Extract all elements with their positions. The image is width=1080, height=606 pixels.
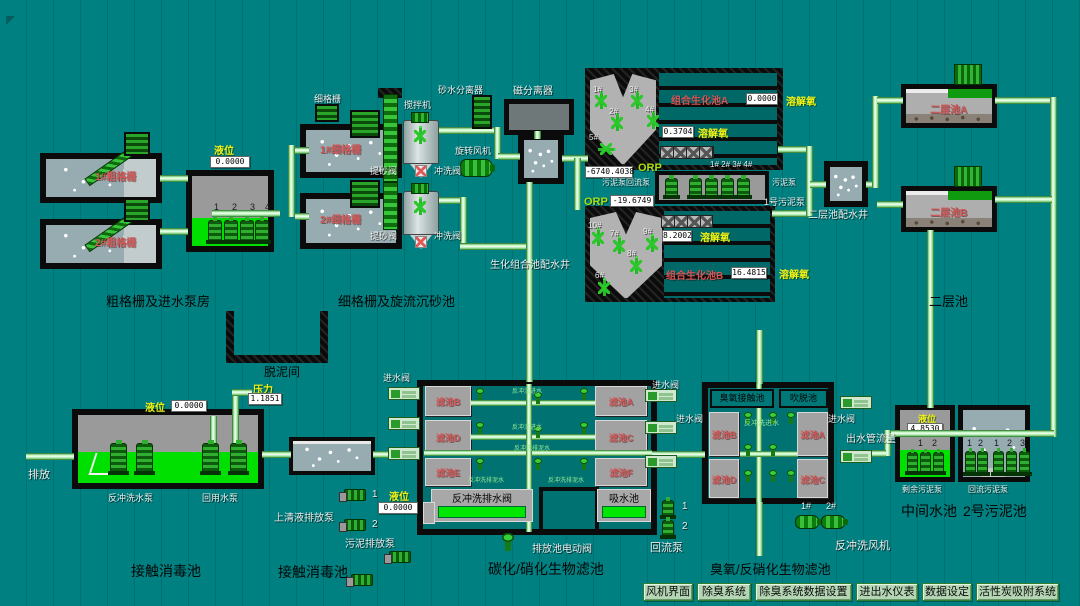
secondary-distribution-well: [824, 161, 868, 207]
section-title-secondary: 二层池: [929, 291, 968, 310]
sludge-discharge-pump-icon[interactable]: [351, 574, 373, 586]
diffuser-grid: [660, 146, 714, 159]
sludge-pump-icon[interactable]: [737, 178, 750, 197]
separator-mixer-icon[interactable]: [414, 128, 426, 144]
pipe: [498, 153, 520, 160]
inlet-pump-icon[interactable]: [208, 220, 222, 242]
backwash-in-label: 反冲洗进水: [512, 386, 542, 395]
separator-mixer-icon[interactable]: [414, 199, 426, 215]
mixer-icon[interactable]: [613, 238, 625, 254]
ozone-contact-label: 臭氧接触池: [712, 391, 772, 406]
backwash-in-label: 反冲洗进水: [512, 422, 542, 431]
filter-cell: 滤池C: [797, 459, 828, 498]
inlet-pump-icon[interactable]: [255, 220, 269, 242]
inlet-gate-icon[interactable]: [388, 447, 420, 460]
pipe: [995, 97, 1055, 104]
fan-number: 1#: [801, 501, 811, 511]
inlet-gate-icon[interactable]: [388, 417, 420, 430]
magnetic-separator-box: [504, 99, 574, 135]
mixer-number: 8#: [627, 249, 636, 258]
contact-tank-2: [289, 437, 375, 475]
dewater-room-label: 脱泥间: [264, 363, 300, 380]
inlet-valve-label: 进水阀: [828, 412, 855, 425]
sludge-discharge-pump-icon[interactable]: [389, 551, 411, 563]
status-bar: [602, 506, 646, 518]
valve-icon[interactable]: [786, 470, 796, 482]
rotary-fan-label: 旋转风机: [455, 144, 491, 157]
valve-icon[interactable]: [475, 388, 485, 400]
return-pump-icon[interactable]: [662, 520, 674, 537]
return-pump-icon[interactable]: [662, 500, 674, 517]
nav-button-data-settings[interactable]: 数据设定: [922, 583, 972, 601]
dewater-room-wall: [226, 355, 328, 363]
pool-a-name: 组合生化池A: [671, 92, 728, 107]
flush-valve-label: 冲洗阀: [434, 229, 461, 242]
inlet-gate-icon[interactable]: [388, 387, 420, 400]
drain-motor-valve-icon[interactable]: [501, 533, 516, 551]
inlet-gate-icon[interactable]: [645, 421, 677, 434]
reuse-pump-label: 回用水泵: [202, 491, 238, 504]
suction-tank-label: 吸水池: [598, 490, 650, 505]
water-surface: [906, 89, 950, 93]
pipe: [756, 330, 763, 384]
tank-name: 1#细格栅: [320, 141, 361, 156]
inlet-pump-icon[interactable]: [240, 220, 254, 242]
sediment: [906, 218, 992, 227]
pipe: [288, 145, 295, 217]
mixer-icon[interactable]: [598, 143, 614, 155]
pool-b-do-value: 8.2002: [662, 230, 692, 242]
pipe: [160, 228, 188, 235]
mixer-icon[interactable]: [630, 258, 642, 274]
section-title-fine: 细格栅及旋流沉砂池: [338, 291, 455, 310]
coarse-screen-motor-icon[interactable]: [124, 132, 150, 156]
supernatant-pump-label: 上清液排放泵: [274, 509, 334, 524]
inlet-gate-icon[interactable]: [840, 450, 872, 463]
pipe: [295, 147, 309, 154]
grit-valve-label: 提砂阀: [370, 164, 397, 177]
valve-icon[interactable]: [768, 444, 778, 456]
pipe: [232, 393, 239, 447]
filter-cell: 滤池F: [595, 458, 647, 486]
separator-motor-icon[interactable]: [411, 112, 429, 123]
backwash-pump-label: 反冲洗水泵: [108, 491, 153, 504]
mixer-number: 1#: [593, 85, 602, 94]
valve-icon[interactable]: [786, 412, 796, 424]
tank-name: 2#粗格栅: [95, 234, 136, 249]
cell-name: 滤池A: [798, 428, 827, 441]
mixer-number: 9#: [643, 227, 652, 236]
backwash-drain-label: 反冲洗排泥水: [548, 475, 584, 484]
nav-button-fan-ui[interactable]: 风机界面: [643, 583, 693, 601]
mixer-icon[interactable]: [611, 115, 623, 131]
tank-name: 2#细格栅: [320, 211, 361, 226]
rotary-fan-icon[interactable]: [460, 159, 492, 177]
nav-button-deodorize-settings[interactable]: 除臭系统数据设置: [755, 583, 852, 601]
sludge-pump-box: [655, 171, 769, 204]
valve-icon[interactable]: [579, 458, 589, 470]
pump-number: 2: [932, 438, 937, 448]
cell-name: 滤池D: [426, 431, 470, 444]
supernatant-pump-icon[interactable]: [344, 489, 366, 501]
mixer-icon[interactable]: [592, 230, 604, 246]
sludge-pump-icon[interactable]: [721, 178, 734, 197]
cell-name: 滤池C: [798, 473, 827, 486]
sludge-pool-2: 1 2 1 2 3: [958, 405, 1030, 482]
pump-number: 2: [682, 521, 688, 532]
filter-cell: 滤池C: [595, 420, 647, 454]
filter-cell: 滤池D: [709, 459, 739, 498]
pipe: [772, 210, 810, 217]
sand-separator-label: 砂水分离器: [438, 83, 483, 96]
drain-cell: [539, 487, 599, 533]
inlet-valve-label: 进水阀: [652, 378, 679, 391]
mid-pool: 液位 4.8530 1 2: [895, 405, 955, 482]
sludge-pump-icon[interactable]: [705, 178, 718, 197]
inlet-valve-label: 进水阀: [676, 412, 703, 425]
mixer-icon[interactable]: [598, 280, 610, 296]
section-title-contact1: 接触消毒池: [131, 561, 201, 581]
mixer-number: 4#: [645, 105, 654, 114]
cell-name: 滤池E: [426, 466, 470, 479]
valve-icon[interactable]: [475, 422, 485, 434]
sludge-pump-icon[interactable]: [689, 178, 702, 197]
pipe: [877, 97, 903, 104]
orp-b-value: -19.6749: [610, 195, 654, 207]
pipe: [888, 430, 1054, 437]
screen-conveyor-icon[interactable]: [383, 182, 398, 230]
surplus-sludge-pump-icon[interactable]: [933, 452, 944, 473]
mixer-number: 2#: [609, 107, 618, 116]
section-title-coarse: 粗格栅及进水泵房: [106, 291, 210, 310]
orp-label: ORP: [584, 196, 608, 208]
tank-motor-icon[interactable]: [954, 166, 982, 187]
bio-distribution-well: [518, 134, 564, 184]
separator-motor-icon[interactable]: [411, 183, 429, 194]
surplus-sludge-pump-icon[interactable]: [907, 452, 918, 473]
backwash-water-pump-icon[interactable]: [110, 443, 127, 473]
sludge-return-pump-icon[interactable]: [665, 178, 678, 197]
diffuser-grid: [661, 215, 713, 228]
tank-green-band: [948, 191, 992, 200]
sludge-pump-numbers: 1# 2# 3# 4#: [710, 160, 752, 169]
cell-name: 滤池B: [426, 395, 470, 408]
pump-number: 2: [978, 438, 983, 448]
secondary-well-label: 二层池配水井: [808, 206, 868, 221]
filter-cell: 滤池A: [797, 412, 828, 456]
backwash-drain-valve-label: 反冲洗排水阀: [432, 490, 532, 505]
valve-icon[interactable]: [475, 458, 485, 470]
pipe: [460, 243, 532, 250]
pipe: [995, 196, 1052, 203]
section-title-carbon: 碳化/硝化生物滤池: [488, 559, 604, 579]
pool-b-name: 组合生化池B: [666, 267, 723, 282]
pipe: [1050, 97, 1057, 437]
cell-name: 滤池C: [596, 431, 646, 444]
return-sludge-pump-icon[interactable]: [977, 451, 988, 474]
cell-name: 滤池B: [710, 428, 738, 441]
mixer-label: 搅拌机: [404, 98, 431, 111]
pipe: [460, 197, 467, 249]
backwash-drain-label: 反冲洗排泥水: [468, 475, 504, 484]
valve-icon[interactable]: [743, 470, 753, 482]
pool-a-value: 0.0000: [746, 93, 778, 105]
cell-name: 滤池D: [710, 473, 738, 486]
pipe: [756, 502, 763, 556]
drain-valve-label: 排放池电动阀: [532, 540, 592, 555]
pool-b-value: 16.4815: [731, 267, 767, 279]
flush-valve-label: 冲洗阀: [434, 164, 461, 177]
mixer-icon[interactable]: [646, 236, 658, 252]
sludge-discharge-pump-label: 污泥排放泵: [345, 535, 395, 550]
inlet-pump-icon[interactable]: [224, 220, 238, 242]
fine-screen-machine-icon[interactable]: [350, 110, 380, 138]
pipe: [262, 451, 291, 458]
pipe: [810, 181, 826, 188]
reuse-water-pump-icon[interactable]: [202, 443, 219, 473]
flush-valve-icon[interactable]: [415, 165, 427, 177]
backwash-fan-label: 反冲洗风机: [835, 537, 890, 553]
backwash-water-pump-icon[interactable]: [136, 443, 153, 473]
do-label: 溶解氧: [700, 229, 730, 244]
step-structure: [423, 502, 435, 524]
cell-name: 滤池A: [596, 395, 646, 408]
mixer-icon[interactable]: [631, 93, 643, 109]
fine-screen-machine-icon[interactable]: [350, 180, 380, 208]
return-pump-label: 回流泵: [650, 539, 683, 555]
pump-number: 1: [682, 501, 688, 512]
water-surface: [906, 191, 950, 195]
magnetic-separator-label: 磁分离器: [513, 82, 553, 97]
stripping-label: 吹脱池: [781, 391, 826, 406]
outflow-label: 出水管流量: [846, 430, 896, 445]
filter-cell: 滤池B: [425, 386, 471, 416]
tank-name: 二层池A: [930, 101, 967, 116]
valve-icon[interactable]: [743, 444, 753, 456]
fine-screen-motor-icon[interactable]: [315, 104, 339, 122]
backwash-drain-valve-box: 反冲洗排水阀: [431, 489, 533, 522]
pipe: [526, 182, 533, 382]
mixer-number: 6#: [595, 271, 604, 280]
nav-button-io-meters[interactable]: 进出水仪表: [856, 583, 918, 601]
backwash-in-label: 反冲洗进水: [744, 418, 779, 428]
backwash-drain-label: 反冲洗排泥水: [514, 443, 550, 452]
pipe: [574, 158, 581, 210]
filter-cell: 滤池A: [595, 386, 647, 416]
pipe: [212, 210, 280, 217]
mixer-icon[interactable]: [595, 93, 607, 109]
level-value: 0.0000: [210, 156, 250, 168]
pump-number: 2: [372, 519, 378, 530]
pump-number: 1: [918, 438, 923, 448]
mixer-number: 7#: [610, 229, 619, 238]
pipe: [160, 175, 188, 182]
return-sludge-pump-icon[interactable]: [965, 451, 976, 474]
mixer-number: 5#: [589, 133, 598, 142]
pool-a-do-value: 0.3704: [662, 126, 694, 138]
surplus-sludge-pump-label: 剩余污泥泵: [902, 484, 942, 495]
cell-name: 滤池F: [596, 466, 646, 479]
filter-cell: 滤池D: [425, 420, 471, 454]
filter-cell: 滤池E: [425, 458, 471, 486]
stripping-box: 吹脱池: [779, 389, 828, 408]
pump-number: 1: [372, 489, 378, 500]
surplus-sludge-pump-icon[interactable]: [920, 452, 931, 473]
backwash-fan-icon[interactable]: [795, 515, 819, 529]
secondary-tank-b: 二层池B: [901, 186, 997, 232]
pump-number: 1: [967, 438, 972, 448]
valve-icon[interactable]: [579, 388, 589, 400]
return-sludge-pump-icon[interactable]: [993, 451, 1004, 474]
return-sludge-pump-icon[interactable]: [1019, 451, 1030, 474]
pump-number: 2: [1007, 438, 1012, 448]
orp-label: ORP: [638, 162, 662, 174]
section-title-sludge2: 2号污泥池: [963, 501, 1027, 521]
pump-number: 1: [994, 438, 999, 448]
valve-icon[interactable]: [533, 458, 543, 470]
tank-motor-icon[interactable]: [954, 64, 982, 85]
section-title-contact2: 接触消毒池: [278, 562, 348, 582]
valve-icon[interactable]: [579, 422, 589, 434]
sludge-pump-no1-label: 1号污泥泵: [764, 195, 805, 208]
coarse-screen-motor-icon[interactable]: [124, 198, 150, 222]
do-label: 溶解氧: [779, 266, 809, 281]
sludge-pump-label: 污泥泵: [772, 177, 796, 188]
do-label: 溶解氧: [786, 93, 816, 108]
do-label: 溶解氧: [698, 125, 728, 140]
cursor-artifact-icon: [6, 16, 15, 25]
inlet-gate-icon[interactable]: [645, 455, 677, 468]
section-title-mid: 中间水池: [901, 501, 957, 521]
return-sludge-pump-icon[interactable]: [1006, 451, 1017, 474]
pump-number: 3: [1020, 438, 1025, 448]
suction-tank-box: 吸水池: [597, 489, 651, 522]
fan-number: 2#: [826, 501, 836, 511]
secondary-tank-a: 二层池A: [901, 84, 997, 128]
inlet-gate-icon[interactable]: [840, 396, 872, 409]
grit-valve-label: 提砂阀: [370, 229, 397, 242]
tank-name: 1#粗格栅: [95, 168, 136, 183]
level-label: 液位: [389, 488, 409, 503]
backwash-fan-icon[interactable]: [821, 515, 845, 529]
flush-valve-icon[interactable]: [415, 236, 427, 248]
mixer-icon[interactable]: [647, 113, 659, 129]
tank-name: 二层池B: [930, 204, 967, 219]
pipe: [872, 96, 879, 188]
mixer-number: 3#: [629, 85, 638, 94]
ozone-contact-box: 臭氧接触池: [710, 389, 774, 408]
distribution-well-label: 生化组合池配水井: [490, 256, 570, 271]
mixer-number: 10#: [588, 221, 601, 230]
discharge-label: 排放: [28, 466, 50, 482]
pipe: [877, 201, 903, 208]
status-bar: [438, 506, 526, 518]
inlet-valve-label: 进水阀: [383, 371, 410, 384]
tank-green-band: [948, 89, 992, 98]
level-value: 0.0000: [378, 502, 418, 514]
nav-button-deodorize[interactable]: 除臭系统: [697, 583, 751, 601]
fine-screen-label: 细格栅: [314, 92, 341, 105]
nav-button-activated-carbon[interactable]: 活性炭吸附系统: [976, 583, 1059, 601]
filter-cell: 滤池B: [709, 412, 739, 456]
pipe: [534, 131, 541, 139]
level-value: 0.0000: [171, 400, 207, 412]
pressure-value: 1.1851: [248, 393, 282, 405]
valve-icon[interactable]: [768, 470, 778, 482]
level-label: 液位: [145, 399, 165, 414]
return-sludge-pump-label: 回流污泥泵: [968, 484, 1008, 495]
sludge-return-pump-label: 污泥泵回流泵: [602, 177, 650, 188]
reuse-water-pump-icon[interactable]: [230, 443, 247, 473]
section-title-ozone: 臭氧/反硝化生物滤池: [710, 559, 831, 578]
sand-separator-icon[interactable]: [472, 95, 492, 129]
pipe: [927, 230, 934, 408]
pipe: [26, 453, 74, 460]
supernatant-pump-icon[interactable]: [344, 519, 366, 531]
water-surface: [293, 441, 371, 444]
pipe: [295, 213, 309, 220]
level-label: 液位: [214, 142, 234, 157]
